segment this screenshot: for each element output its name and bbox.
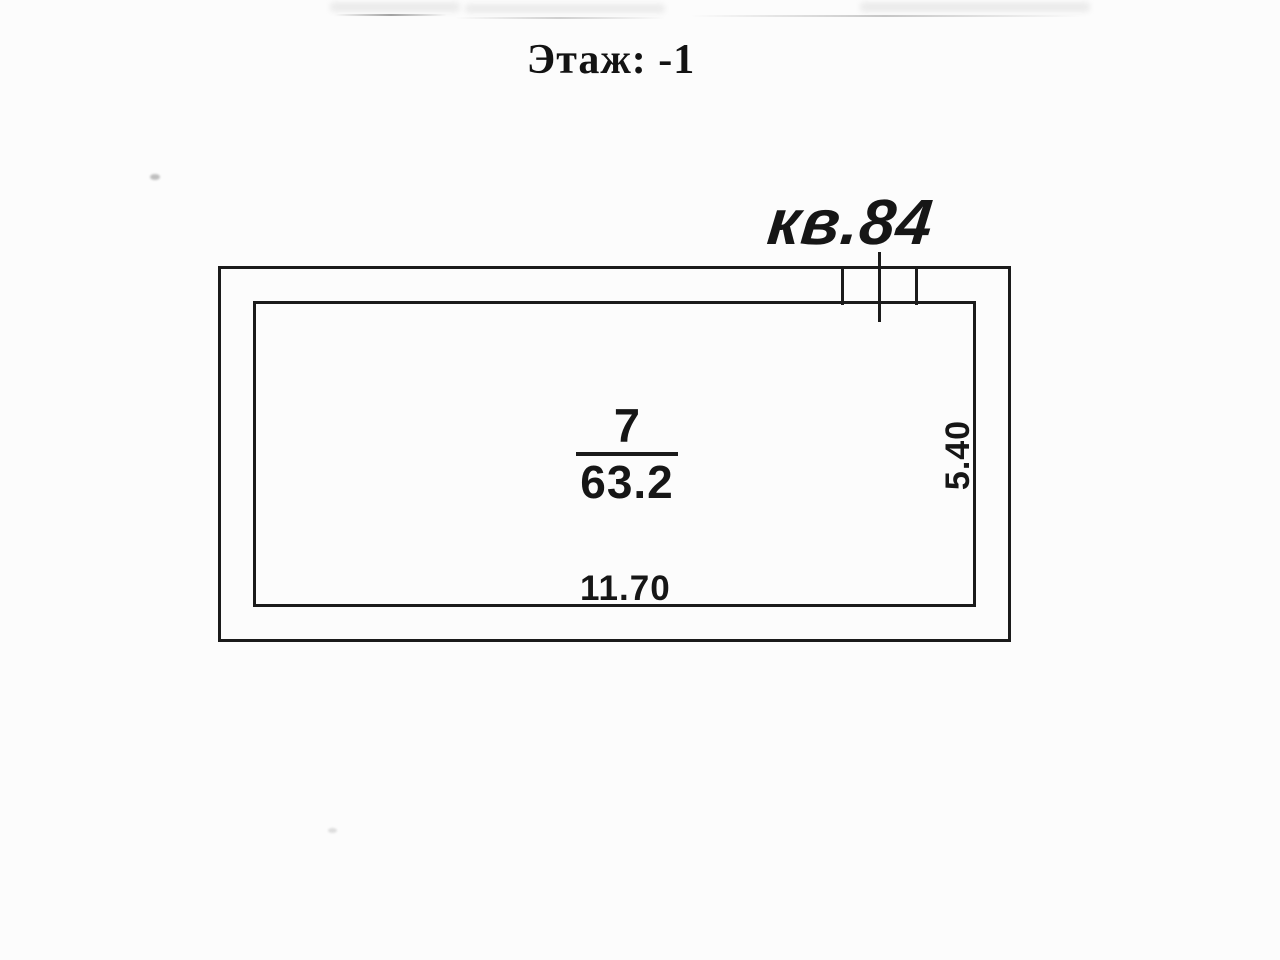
scan-speck-lower-left (328, 828, 337, 833)
scan-speck-upper-left (150, 174, 160, 180)
room-area: 63.2 (565, 456, 689, 505)
scan-artifact-line-mid (455, 17, 665, 19)
scan-artifact-smudge-right (860, 2, 1090, 12)
room-number: 7 (565, 402, 689, 452)
dimension-height-label: 5.40 (941, 414, 977, 496)
apartment-label: кв.84 (765, 190, 937, 254)
opening-center-line (878, 252, 881, 322)
dimension-width-label: 11.70 (580, 571, 671, 606)
scan-artifact-smudge-left (330, 2, 460, 12)
opening-tick-right (915, 267, 918, 305)
scan-artifact-line-right (690, 15, 1080, 17)
scan-artifact-line-left (335, 14, 447, 16)
scan-artifact-smudge-mid (465, 4, 665, 13)
opening-tick-left (841, 267, 844, 305)
room-label: 7 63.2 (565, 402, 689, 505)
floor-title: Этаж: -1 (0, 36, 1222, 84)
